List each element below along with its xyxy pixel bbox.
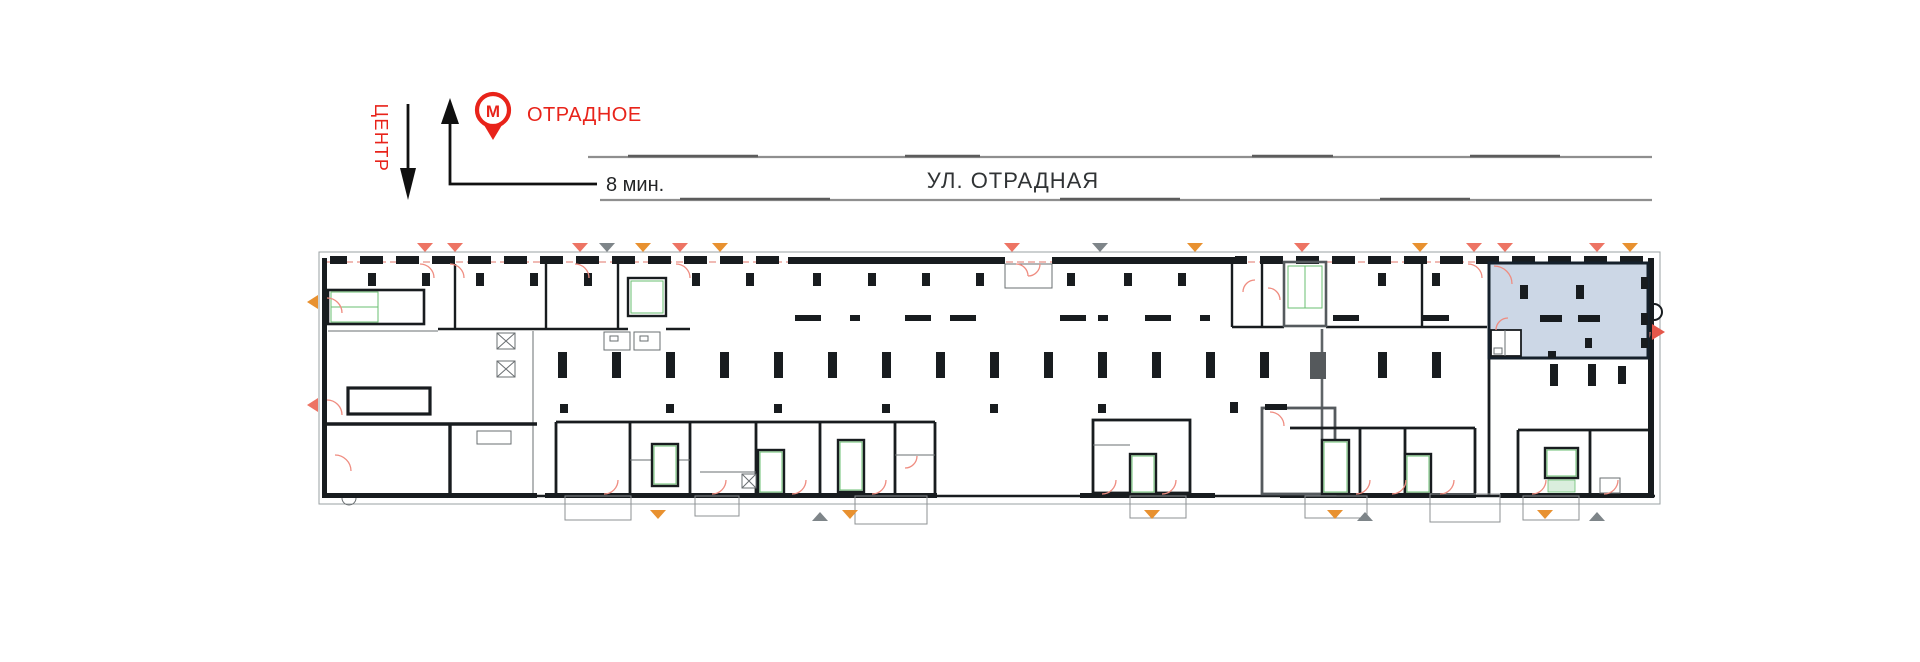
metro-station-label: ОТРАДНОЕ [527,104,642,126]
window-sill-bars [795,315,1449,321]
stair-core-top-left [628,278,666,316]
apartment-cluster-c [1290,428,1475,494]
columns-top-row [368,273,1440,286]
stair-core-top-right [1284,262,1326,326]
header-annotations: ЦЕНТР М ОТРАДНОЕ 8 мин. [371,94,1652,200]
entrance-markers [307,243,1665,521]
elevator-shafts [497,333,515,377]
highlighted-unit[interactable] [1489,263,1648,358]
metro-icon-letter: М [486,102,500,121]
corridor-rooms [604,332,660,350]
building-outer-contour [319,252,1660,504]
street-name-label: УЛ. ОТРАДНАЯ [927,168,1099,193]
street-road [588,156,1652,200]
left-section [325,290,537,505]
metro-icon: М [477,94,509,140]
center-direction-label: ЦЕНТР [371,104,391,173]
site-plan-page: ЦЕНТР М ОТРАДНОЕ 8 мин. [0,0,1920,662]
perimeter-red-dashes [324,262,1652,496]
columns-small-row [560,402,1238,413]
apartment-cluster-a [556,422,935,494]
floor-plan [307,243,1665,524]
floor-plan-canvas: ЦЕНТР М ОТРАДНОЕ 8 мин. [0,0,1920,662]
columns-hall-row [558,352,1626,386]
entrance-porches [565,494,1579,524]
center-direction-arrow-icon [400,104,416,200]
door-swing-arcs [327,264,1650,494]
walk-time-label: 8 мин. [606,174,664,196]
